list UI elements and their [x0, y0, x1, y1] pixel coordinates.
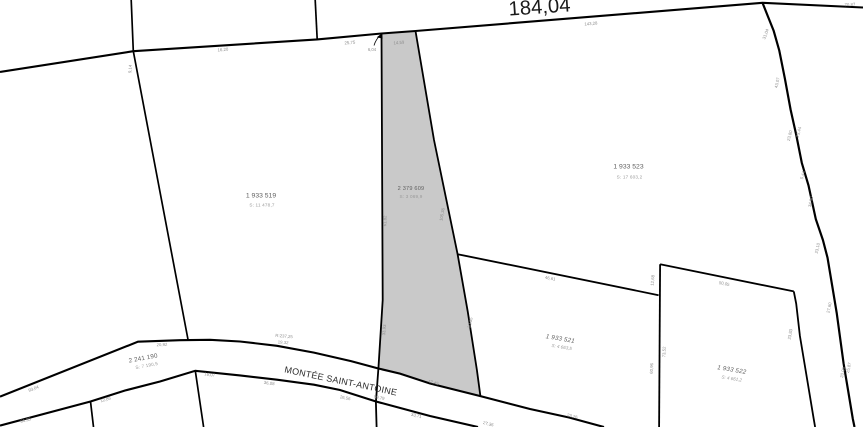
svg-text:60,96: 60,96	[649, 362, 655, 374]
svg-text:9,14: 9,14	[127, 64, 133, 73]
svg-text:1 933 519: 1 933 519	[246, 193, 276, 200]
svg-text:20,92: 20,92	[156, 342, 168, 347]
svg-text:S: 3 069,9: S: 3 069,9	[400, 194, 423, 199]
svg-text:12,68: 12,68	[650, 274, 656, 286]
svg-text:61,82: 61,82	[382, 215, 387, 227]
svg-text:19,32: 19,32	[278, 339, 290, 345]
svg-text:16,20: 16,20	[217, 47, 229, 53]
svg-text:14,59: 14,59	[393, 39, 405, 45]
svg-text:73,52: 73,52	[661, 346, 667, 358]
svg-text:S: 11 478,7: S: 11 478,7	[249, 203, 275, 208]
svg-text:25,75: 25,75	[344, 39, 356, 45]
svg-text:2 379 609: 2 379 609	[398, 186, 425, 192]
svg-text:33,93: 33,93	[381, 324, 387, 336]
svg-text:S: 17 603,2: S: 17 603,2	[617, 175, 643, 180]
svg-text:70,87: 70,87	[844, 2, 856, 8]
svg-text:1 933 523: 1 933 523	[613, 164, 643, 171]
svg-text:6,04: 6,04	[368, 47, 377, 52]
